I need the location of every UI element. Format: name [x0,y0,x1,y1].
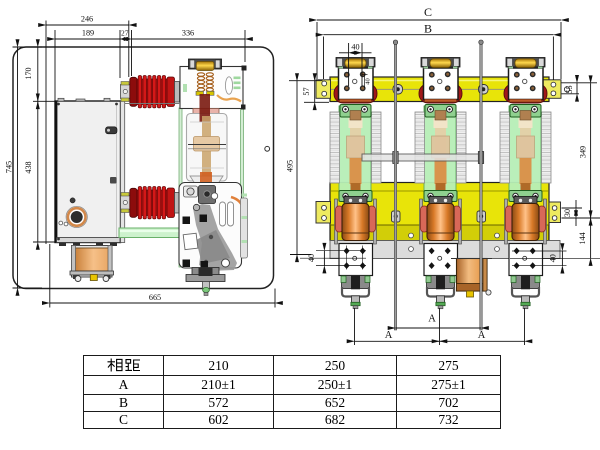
svg-text:40: 40 [549,254,558,262]
svg-text:40: 40 [351,43,359,52]
svg-text:A: A [428,314,436,325]
svg-text:27: 27 [121,29,129,38]
svg-text:B: B [424,22,432,36]
svg-text:40: 40 [307,254,316,262]
svg-text:144: 144 [578,232,587,244]
svg-text:40: 40 [365,78,372,85]
svg-text:336: 336 [182,29,194,38]
svg-text:495: 495 [286,160,295,172]
svg-text:A: A [385,330,393,341]
svg-text:438: 438 [24,161,33,173]
svg-text:57: 57 [302,87,311,95]
svg-text:745: 745 [5,161,14,173]
svg-text:246: 246 [81,15,93,24]
svg-text:665: 665 [149,293,161,302]
svg-text:55: 55 [565,85,574,93]
svg-text:189: 189 [82,29,94,38]
svg-text:C: C [424,5,432,19]
svg-text:30: 30 [563,209,572,217]
svg-text:170: 170 [24,67,33,79]
svg-text:A: A [478,330,486,341]
svg-text:349: 349 [579,146,588,158]
